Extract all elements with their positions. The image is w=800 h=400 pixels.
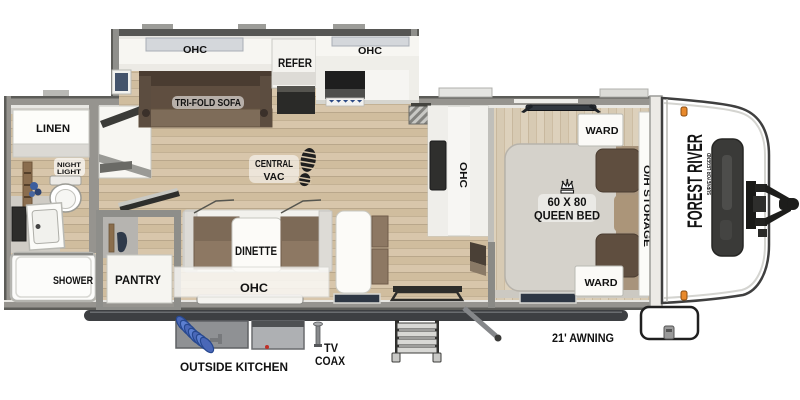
svg-text:60 X 80: 60 X 80 — [548, 195, 587, 209]
svg-text:OHC: OHC — [183, 45, 207, 56]
svg-text:TRI-FOLD SOFA: TRI-FOLD SOFA — [175, 97, 241, 109]
svg-text:OHC: OHC — [457, 162, 468, 188]
svg-text:OHC: OHC — [358, 46, 382, 57]
svg-text:OUTSIDE KITCHEN: OUTSIDE KITCHEN — [180, 360, 288, 374]
svg-text:WARD: WARD — [585, 277, 618, 289]
svg-text:CENTRAL: CENTRAL — [255, 158, 293, 170]
svg-text:VAC: VAC — [264, 171, 285, 183]
svg-text:TV: TV — [324, 341, 338, 355]
svg-text:REFER: REFER — [278, 58, 313, 70]
svg-text:LINEN: LINEN — [36, 123, 70, 135]
svg-text:SHOWER: SHOWER — [53, 275, 93, 287]
svg-text:COAX: COAX — [315, 354, 345, 368]
svg-text:QUEEN BED: QUEEN BED — [534, 209, 600, 223]
svg-text:LIGHT: LIGHT — [57, 169, 81, 176]
svg-text:DINETTE: DINETTE — [235, 246, 277, 258]
svg-text:NIGHT: NIGHT — [57, 162, 81, 169]
svg-text:FOREST RIVER: FOREST RIVER — [684, 134, 707, 228]
svg-text:WARD: WARD — [586, 125, 619, 137]
svg-text:OHC: OHC — [240, 281, 268, 295]
svg-text:21' AWNING: 21' AWNING — [552, 331, 614, 345]
svg-text:PANTRY: PANTRY — [115, 275, 161, 287]
